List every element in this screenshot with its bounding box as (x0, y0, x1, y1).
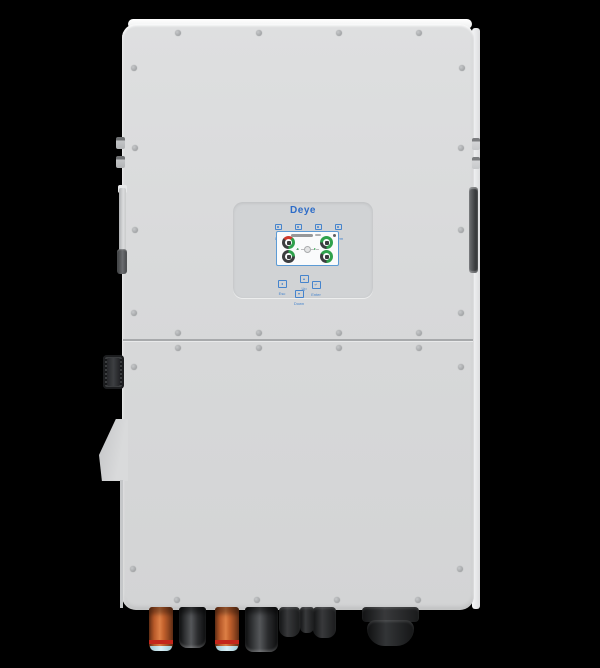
screw-icon (174, 597, 180, 603)
screw-icon (131, 364, 137, 370)
hinge-icon (472, 138, 480, 150)
pv-connector-orange (215, 607, 239, 651)
screw-icon (334, 597, 340, 603)
alarm-led-icon (335, 224, 342, 230)
pv-icon (287, 241, 291, 245)
dc-led-icon (275, 224, 282, 230)
cable-gland (313, 607, 336, 638)
screw-icon (131, 65, 137, 71)
pv-connector-black (179, 607, 206, 648)
display-panel: Deye DC AC Normal Alarm ▸ ▸ (233, 202, 373, 298)
grid-gauge (320, 236, 333, 249)
screw-icon (458, 227, 464, 233)
screw-icon (416, 345, 422, 351)
lcd-title-bar (291, 234, 313, 237)
cable-gland (300, 607, 314, 633)
pv-gauge (282, 236, 295, 249)
down-button[interactable]: ▾ Down (289, 282, 309, 306)
screw-icon (458, 145, 464, 151)
lcd-title-bar-secondary (315, 234, 321, 236)
connector-red-ring (149, 640, 173, 644)
load-gauge (320, 250, 333, 263)
right-handle (469, 187, 478, 273)
enter-button[interactable]: ↵ Enter (306, 273, 326, 297)
pv-connector-orange (149, 607, 173, 651)
hinge-icon (116, 156, 125, 168)
normal-led-icon (315, 224, 322, 230)
screw-icon (459, 65, 465, 71)
dc-switch-knob (107, 358, 120, 386)
screw-icon (175, 345, 181, 351)
brand-logo: Deye (233, 205, 373, 216)
left-handle (117, 249, 127, 274)
grid-icon (325, 241, 329, 245)
battery-gauge (282, 250, 295, 263)
screw-icon (336, 330, 342, 336)
mounting-bracket (99, 419, 128, 481)
mounting-bracket-strip (120, 480, 123, 608)
enter-icon: ↵ (312, 281, 321, 289)
screw-icon (131, 310, 137, 316)
screw-icon (175, 30, 181, 36)
down-arrow-icon: ▾ (295, 290, 304, 298)
lcd-screen: ▸ ▸ (276, 231, 339, 266)
battery-icon (287, 255, 291, 259)
dc-disconnect-switch[interactable] (103, 355, 124, 389)
load-icon (325, 255, 329, 259)
ac-cable-gland (367, 620, 414, 646)
screw-icon (256, 330, 262, 336)
screw-icon (130, 566, 136, 572)
esc-icon: ◂ (278, 280, 287, 288)
screw-icon (416, 30, 422, 36)
hinge-icon (116, 137, 125, 149)
screw-icon (254, 597, 260, 603)
screw-icon (336, 345, 342, 351)
gear-icon (333, 234, 337, 238)
connector-tip (150, 646, 172, 651)
screw-icon (416, 330, 422, 336)
screw-icon (132, 145, 138, 151)
hinge-icon (472, 157, 480, 169)
ac-led-icon (295, 224, 302, 230)
inverter-unit: Deye DC AC Normal Alarm ▸ ▸ (0, 0, 600, 668)
screw-icon (132, 227, 138, 233)
connector-red-ring (215, 640, 239, 644)
front-cover (122, 24, 474, 610)
connector-tip (216, 646, 238, 651)
screw-icon (415, 597, 421, 603)
screw-icon (336, 30, 342, 36)
pv-connector-black (245, 607, 278, 652)
screw-icon (458, 364, 464, 370)
cable-gland (279, 607, 300, 637)
cover-seam-highlight (123, 341, 473, 342)
flow-arrow-icon: ▸ (314, 247, 316, 251)
screw-icon (457, 566, 463, 572)
screw-icon (256, 345, 262, 351)
screw-icon (458, 310, 464, 316)
screw-icon (256, 30, 262, 36)
screw-icon (175, 330, 181, 336)
flow-arrow-icon: ▸ (297, 247, 299, 251)
flow-hub-icon (304, 246, 311, 253)
